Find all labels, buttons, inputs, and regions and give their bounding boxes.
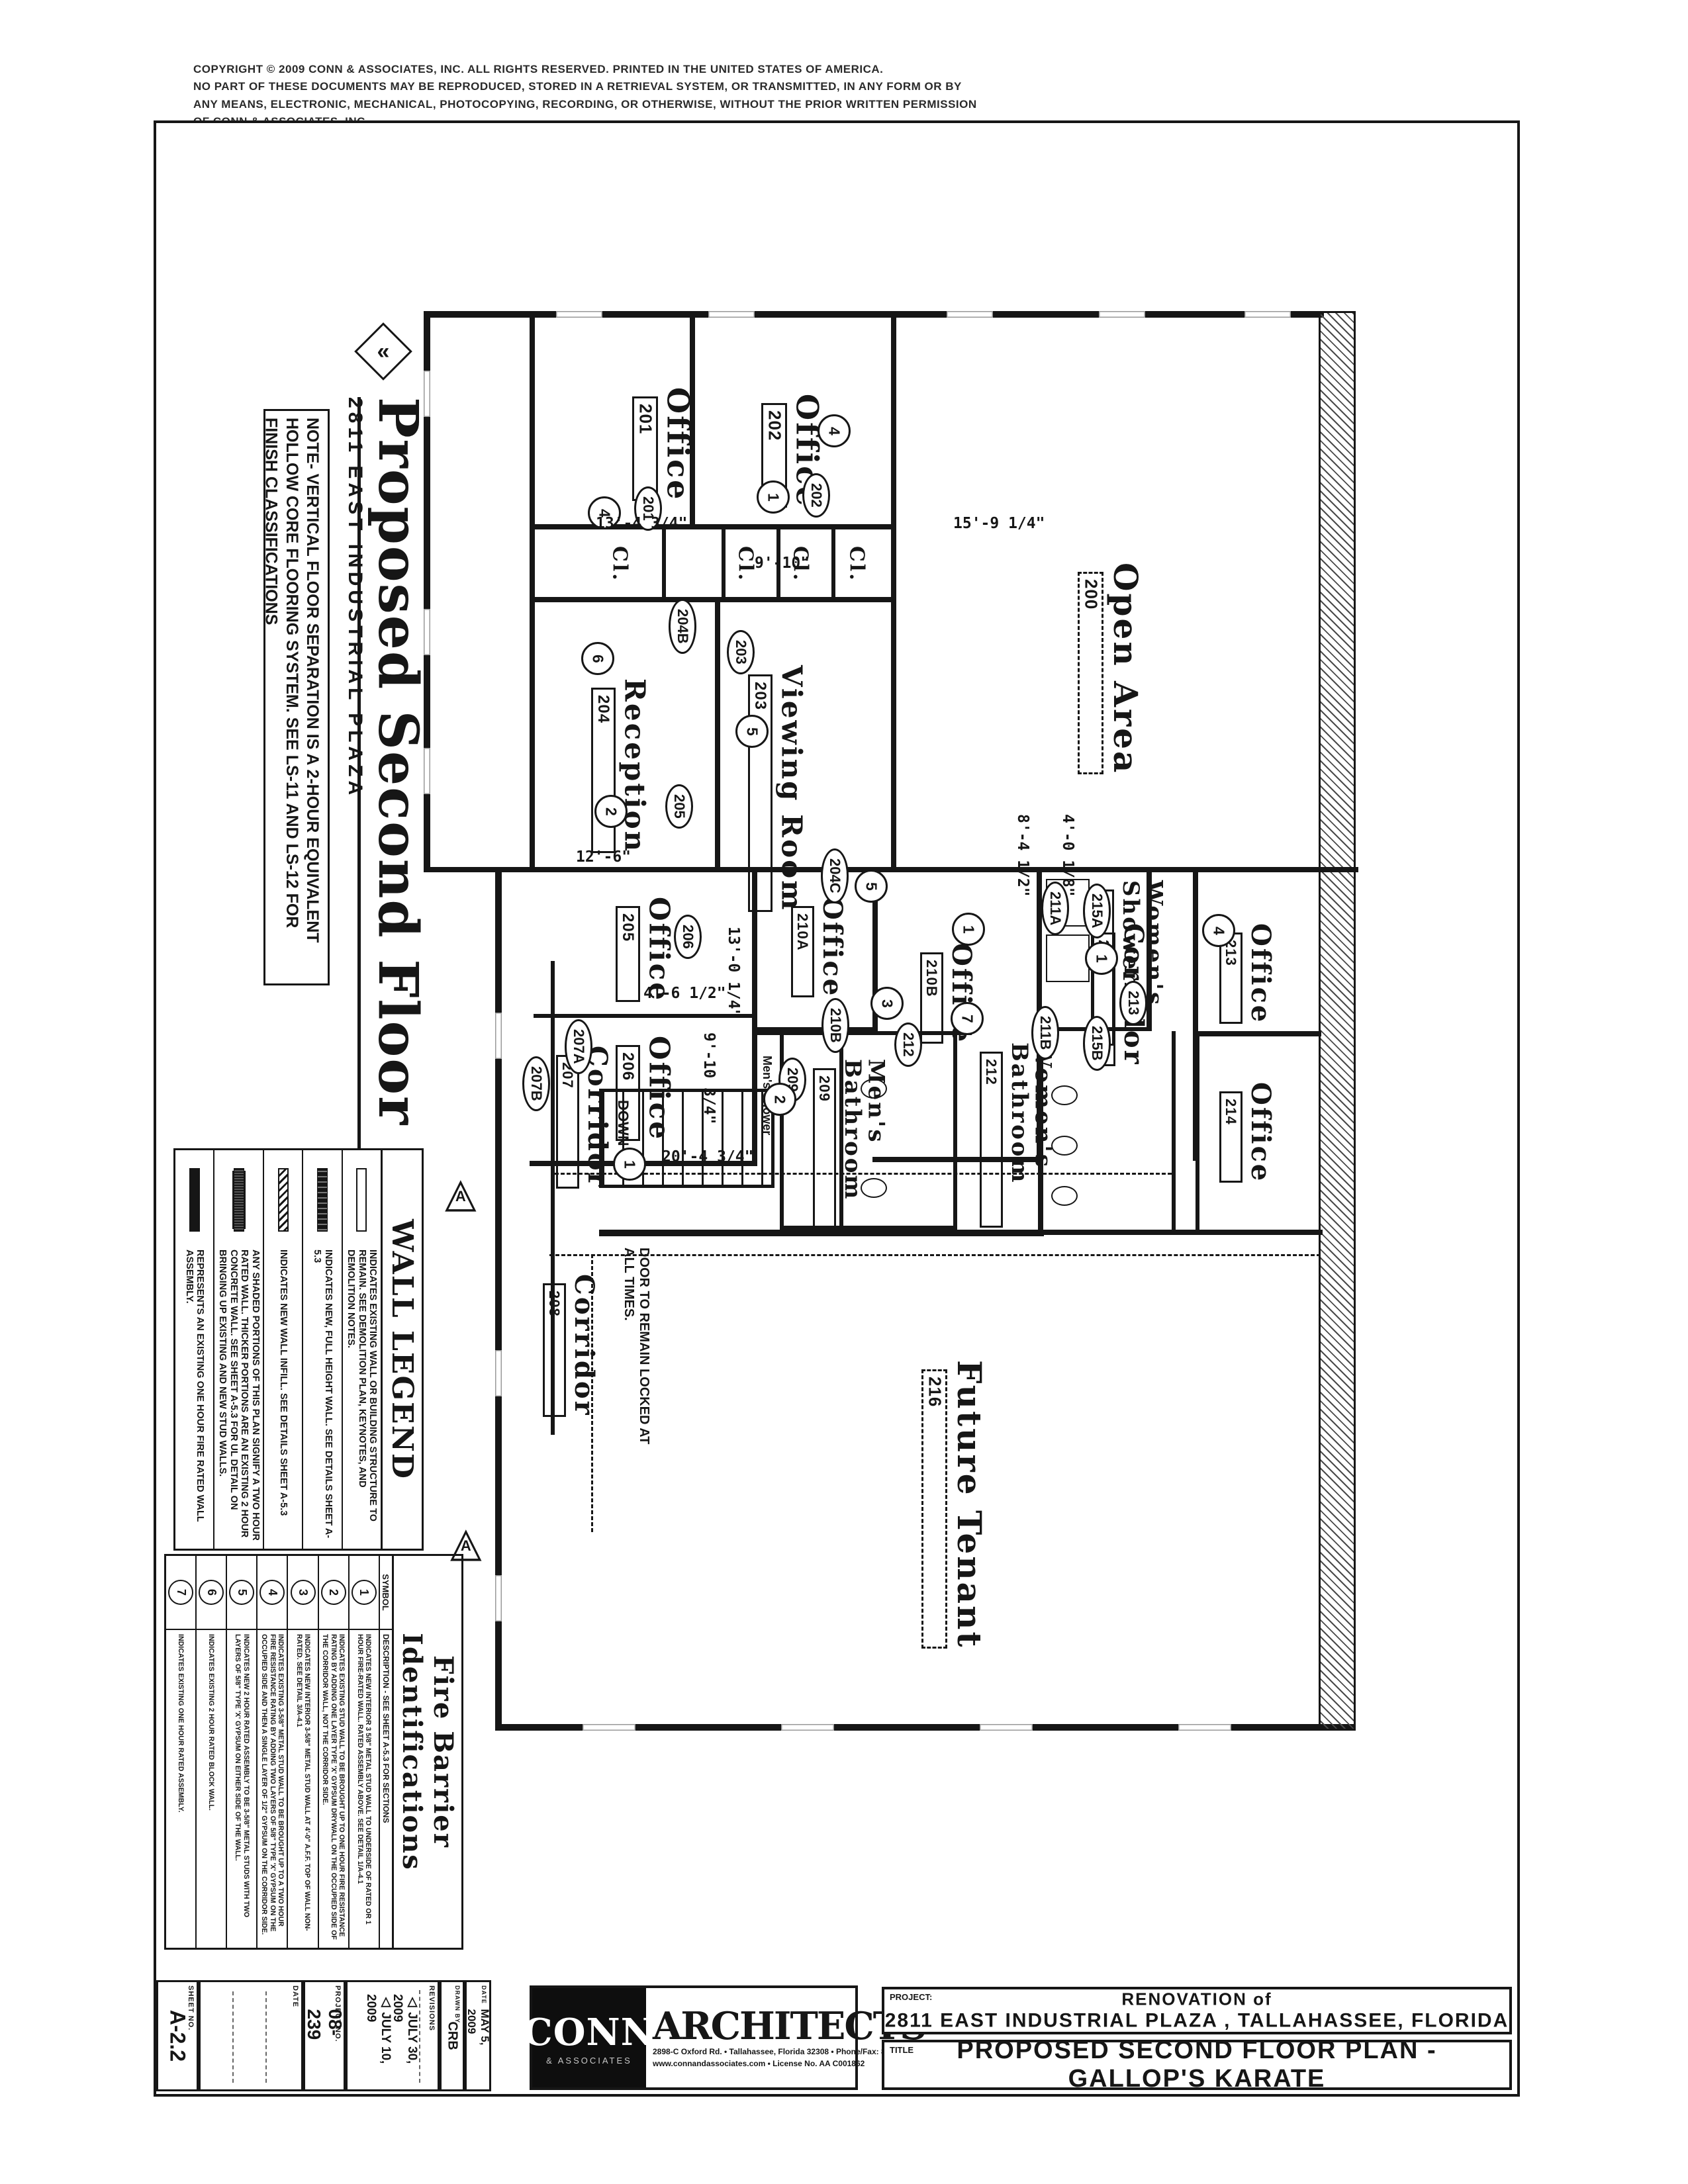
dimension-label: 13'-0 1/4"	[725, 927, 742, 1018]
dimension-label: 13'-4 3/4"	[596, 515, 687, 532]
one-hour-wall-symbol	[189, 1150, 200, 1250]
dimension-label: 8'-4 1/2"	[1014, 814, 1031, 897]
window-opening	[1099, 311, 1145, 318]
closet-label: Cl.	[846, 546, 867, 582]
legend-row: INDICATES NEW WALL INFILL. SEE DETAILS S…	[263, 1150, 302, 1549]
door-tag: 215B	[1083, 1016, 1111, 1071]
room-mens-bathroom-209: Men's Bathroom209	[813, 1059, 887, 1231]
wall	[530, 524, 896, 529]
wall-legend-title: WALL LEGEND	[381, 1150, 422, 1549]
copyright-line: COPYRIGHT © 2009 CONN & ASSOCIATES, INC.…	[193, 61, 977, 78]
wall	[1038, 1230, 1323, 1235]
door-locked-note: DOOR TO REMAIN LOCKED AT ALL TIMES.	[621, 1248, 651, 1446]
fire-barrier-row: 5 INDICATES NEW 2 HOUR RATED ASSEMBLY TO…	[226, 1556, 256, 1948]
fire-marker: 1	[613, 1148, 646, 1181]
section-marker-icon: △A	[445, 1173, 477, 1214]
revisions-label: REVISIONS	[428, 1985, 436, 2031]
wall	[534, 1014, 753, 1018]
date-label: DATE	[481, 1985, 487, 2004]
dimension-label: 20'-4 3/4"	[662, 1148, 753, 1165]
sheet-number-box: SHEET NO. A-2.2	[156, 1980, 199, 2091]
wall	[780, 1031, 784, 1230]
window-opening	[583, 1724, 635, 1731]
dimension-label: 4'-0 1/8"	[1059, 814, 1076, 897]
firm-logo-block: CONN & ASSOCIATES ARCHITECTS 2898-C Oxfo…	[530, 1985, 858, 2090]
window-opening	[424, 371, 430, 417]
fire-marker: 6	[581, 642, 614, 675]
floor-separation-note: NOTE- VERTICAL FLOOR SEPARATION IS A 2-H…	[263, 409, 330, 985]
fire-desc: INDICATES EXISTING STUD WALL TO BE BROUG…	[320, 1630, 348, 1948]
wall	[1196, 1036, 1199, 1235]
date-value: MAY 5, 2009	[465, 2009, 491, 2063]
room-office-210a: Office210A	[791, 897, 846, 997]
date-column-label: DATE	[291, 1985, 299, 2007]
existing-hatched-wall	[1319, 311, 1356, 1731]
existing-wall-symbol	[356, 1150, 367, 1250]
wall-legend: WALL LEGEND INDICATES EXISTING WALL OR B…	[173, 1148, 424, 1551]
fire-marker: 2	[763, 1083, 796, 1116]
wall	[424, 867, 1358, 872]
sheet-title: PROPOSED SECOND FLOOR PLAN - GALLOP'S KA…	[884, 2036, 1509, 2093]
wall	[530, 311, 535, 872]
room-reception-204: Reception204	[591, 678, 649, 853]
closet-label: Cl.	[609, 546, 630, 582]
drawn-by-label: DRAWN BY	[454, 1985, 461, 2023]
down-label: DOWN	[614, 1100, 632, 1146]
fire-marker: 2	[594, 795, 628, 828]
demising-dashed-line	[549, 1254, 1321, 1256]
fire-marker: 3	[870, 987, 904, 1020]
revision-rule	[419, 1990, 420, 2083]
legend-desc: INDICATES NEW WALL INFILL. SEE DETAILS S…	[275, 1250, 291, 1549]
legend-row: ANY SHADED PORTIONS OF THIS PLAN SIGNIFY…	[213, 1150, 263, 1549]
fire-marker: 7	[951, 1002, 984, 1035]
wall	[662, 529, 666, 601]
window-opening	[495, 1575, 502, 1621]
door-tag: 204B	[669, 599, 696, 654]
dimension-label: 4'-6 1/2"	[643, 985, 726, 1002]
revision-rule	[232, 1991, 234, 2083]
fire-desc: INDICATES NEW 2 HOUR RATED ASSEMBLY TO B…	[232, 1630, 252, 1948]
new-wall-infill-symbol	[278, 1150, 289, 1250]
legend-desc: REPRESENTS AN EXISTING ONE HOUR FIRE RAT…	[181, 1250, 207, 1549]
fire-desc: INDICATES NEW INTERIOR 3 5/8" METAL STUD…	[354, 1630, 373, 1948]
two-hour-wall-symbol	[234, 1150, 244, 1250]
window-opening	[980, 1724, 1033, 1731]
room-corridor-208: Corridor208	[543, 1274, 598, 1417]
fire-barrier-row: 6 INDICATES EXISTING 2 HOUR RATED BLOCK …	[195, 1556, 226, 1948]
dimension-label: 12'-6"	[576, 848, 631, 866]
door-tag: 207B	[522, 1056, 550, 1111]
fire-marker: 1	[1085, 942, 1118, 975]
fire-barrier-row: 3 INDICATES NEW INTERIOR 3-5/8" METAL ST…	[287, 1556, 317, 1948]
fire-marker: 1	[757, 480, 790, 514]
project-box: PROJECT: RENOVATION of 2811 EAST INDUSTR…	[882, 1987, 1512, 2034]
project-number-box: PROJECT NO. 08-239	[303, 1980, 346, 2091]
room-office-201: Office201	[632, 387, 694, 501]
fire-marker: 4	[818, 414, 851, 447]
wall	[831, 529, 835, 601]
toilet-fixture	[1051, 1186, 1078, 1206]
legend-row: REPRESENTS AN EXISTING ONE HOUR FIRE RAT…	[175, 1150, 213, 1549]
door-tag: 206	[674, 915, 702, 959]
firm-logo-text: CONN	[523, 2011, 655, 2054]
closet-label: Cl.	[735, 546, 756, 582]
legend-row: INDICATES NEW, FULL HEIGHT WALL. SEE DET…	[302, 1150, 341, 1549]
revision-entry: △ JULY 30, 2009	[390, 1994, 419, 2089]
legend-desc: INDICATES EXISTING WALL OR BUILDING STRU…	[343, 1250, 380, 1549]
sheet-title-box: TITLE PROPOSED SECOND FLOOR PLAN - GALLO…	[882, 2040, 1512, 2090]
legend-desc: INDICATES NEW, FULL HEIGHT WALL. SEE DET…	[309, 1250, 335, 1549]
description-header: DESCRIPTION - SEE SHEET A-5.3 FOR SECTIO…	[380, 1630, 392, 1948]
fire-barrier-row: 1 INDICATES NEW INTERIOR 3 5/8" METAL ST…	[348, 1556, 379, 1948]
revisions-box: REVISIONS △ JULY 10, 2009 △ JULY 30, 200…	[346, 1980, 440, 2091]
door-tag: 215A	[1083, 884, 1111, 938]
revision-entry: △ JULY 10, 2009	[363, 1994, 393, 2089]
room-open-area: Open Area200	[1078, 563, 1143, 774]
fire-symbol-5: 5	[229, 1580, 254, 1605]
fire-symbol-7: 7	[168, 1580, 193, 1605]
fire-barrier-table: Fire Barrier Identifications SYMBOL DESC…	[164, 1554, 463, 1950]
revision-rule	[265, 1991, 267, 2083]
window-opening	[947, 311, 993, 318]
room-viewing-room-203: Viewing Room203	[748, 665, 806, 912]
fire-marker: 5	[855, 870, 888, 903]
new-full-height-wall-symbol	[317, 1150, 328, 1250]
section-marker-icon: △A	[450, 1522, 482, 1563]
fire-desc: INDICATES EXISTING ONE HOUR RATED ASSEMB…	[175, 1630, 187, 1948]
wall	[530, 597, 896, 602]
window-opening	[1178, 1724, 1231, 1731]
firm-logo-subtext: & ASSOCIATES	[546, 2056, 632, 2066]
door-tag: 211B	[1031, 1006, 1059, 1060]
door-tag: 207A	[565, 1019, 592, 1074]
project-line2: 2811 EAST INDUSTRIAL PLAZA , TALLAHASSEE…	[884, 2010, 1509, 2032]
drawn-by: CRB	[445, 2021, 460, 2050]
wall	[722, 529, 726, 601]
scanned-floor-plan-sheet: { "sheet": { "copyright_lines": [ "COPYR…	[0, 0, 1688, 2184]
window-opening	[708, 311, 755, 318]
symbol-header: SYMBOL	[380, 1556, 392, 1630]
door-tag: 203	[727, 630, 755, 674]
fire-barrier-title: Fire Barrier Identifications	[392, 1556, 461, 1948]
fire-marker: 1	[952, 913, 985, 946]
drawn-by-box: DRAWN BY CRB	[440, 1980, 465, 2091]
fire-marker: 5	[735, 715, 769, 748]
dimension-label: 15'-9 1/4"	[953, 515, 1045, 532]
wall	[1198, 1031, 1321, 1036]
wall	[953, 1031, 957, 1230]
dimension-label: 9'-10 3/4"	[700, 1032, 718, 1124]
window-opening	[1244, 311, 1291, 318]
fire-barrier-header: SYMBOL DESCRIPTION - SEE SHEET A-5.3 FOR…	[379, 1556, 392, 1948]
fire-symbol-3: 3	[291, 1580, 316, 1605]
firm-logo: CONN & ASSOCIATES	[532, 1988, 646, 2087]
window-opening	[556, 311, 602, 318]
door-tag: 205	[665, 784, 693, 829]
legend-desc: ANY SHADED PORTIONS OF THIS PLAN SIGNIFY…	[214, 1250, 263, 1549]
window-opening	[424, 748, 430, 794]
door-tag: 212	[894, 1023, 922, 1067]
fire-marker: 4	[1202, 914, 1235, 947]
fire-barrier-row: 7 INDICATES EXISTING ONE HOUR RATED ASSE…	[166, 1556, 195, 1948]
project-line1: RENOVATION of	[884, 1989, 1509, 2010]
fire-desc: INDICATES NEW INTERIOR 3-5/8" METAL STUD…	[293, 1630, 312, 1948]
date-column-box: DATE	[199, 1980, 303, 2091]
window-opening	[495, 1350, 502, 1396]
date-box: DATE MAY 5, 2009	[465, 1980, 491, 2091]
fire-barrier-row: 4 INDICATES EXISTING 3-5/8" METAL STUD W…	[256, 1556, 287, 1948]
room-womens-bathroom-212: Women's Bathroom212	[980, 1042, 1054, 1228]
fire-symbol-6: 6	[199, 1580, 224, 1605]
wall	[715, 602, 720, 870]
window-opening	[424, 609, 430, 655]
wall	[1172, 1031, 1176, 1234]
sheet-number: A-2.2	[165, 2010, 190, 2062]
fire-symbol-1: 1	[352, 1580, 377, 1605]
fire-symbol-2: 2	[321, 1580, 346, 1605]
room-office-214: Office214	[1219, 1082, 1274, 1183]
legend-row: INDICATES EXISTING WALL OR BUILDING STRU…	[342, 1150, 381, 1549]
shower-stall	[1046, 934, 1090, 982]
fire-desc: INDICATES EXISTING 2 HOUR RATED BLOCK WA…	[206, 1630, 217, 1948]
fire-desc: INDICATES EXISTING 3-5/8" METAL STUD WAL…	[259, 1630, 287, 1948]
door-tag: 202	[802, 473, 830, 518]
door-tag: 210B	[821, 998, 849, 1053]
door-tag: 213	[1119, 981, 1147, 1025]
dimension-label: 9'-10"	[755, 555, 810, 572]
wall	[891, 311, 896, 871]
copyright-line: ANY MEANS, ELECTRONIC, MECHANICAL, PHOTO…	[193, 96, 977, 113]
fire-symbol-4: 4	[259, 1580, 285, 1605]
window-opening	[781, 1724, 834, 1731]
door-tag: 204C	[821, 848, 849, 903]
room-future-tenant-216: Future Tenant216	[921, 1360, 986, 1649]
wall	[757, 1027, 878, 1031]
copyright-line: NO PART OF THESE DOCUMENTS MAY BE REPROD…	[193, 78, 977, 95]
window-opening	[495, 1013, 502, 1059]
fire-barrier-row: 2 INDICATES EXISTING STUD WALL TO BE BRO…	[318, 1556, 348, 1948]
project-number: 08-239	[303, 2009, 346, 2063]
